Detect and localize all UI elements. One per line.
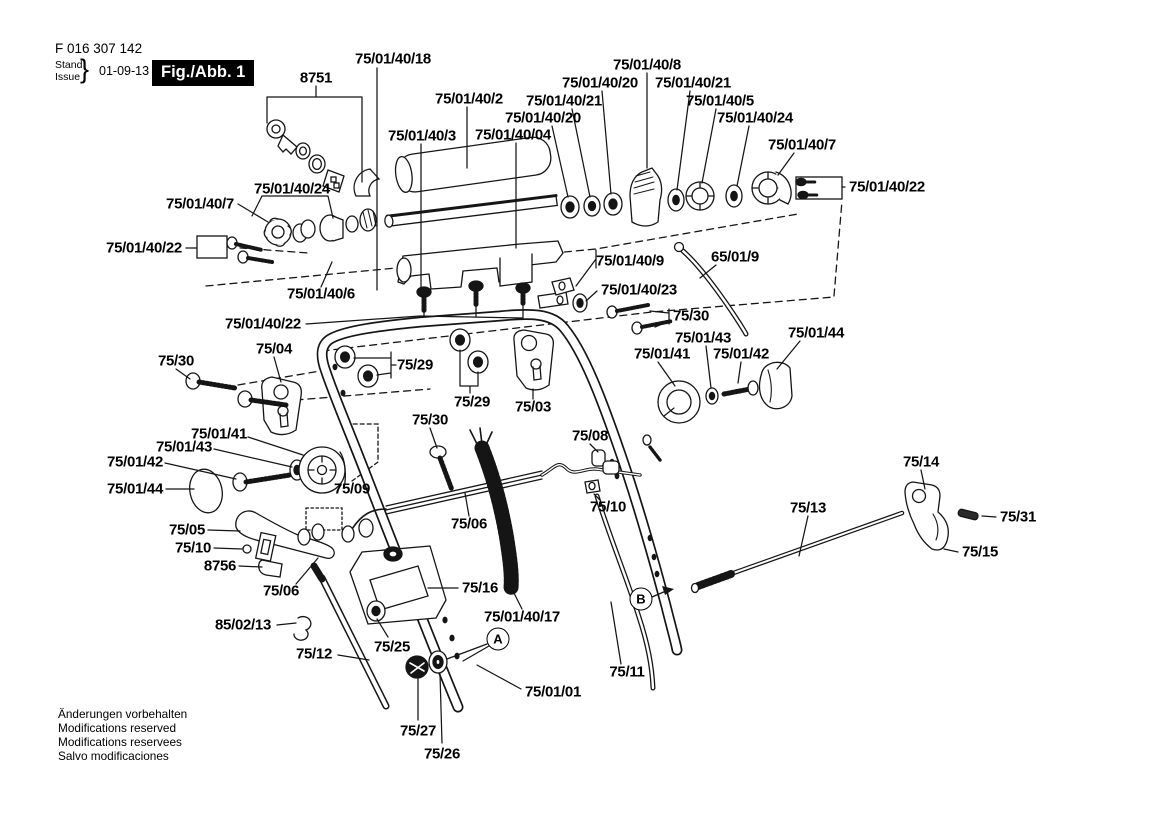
part-label: 75/30 (673, 309, 709, 324)
part-label: 75/01/40/21 (526, 94, 602, 109)
part-label: 75/01/42 (713, 347, 769, 362)
part-label: 75/01/40/7 (768, 138, 836, 153)
part-label: 75/01/40/24 (717, 111, 793, 126)
part-label: 75/01/40/20 (562, 76, 638, 91)
detail-marker-a: A (487, 628, 510, 651)
part-label: 75/08 (572, 429, 608, 444)
part-label: 75/01/40/20 (505, 111, 581, 126)
part-label: 75/01/40/22 (106, 241, 182, 256)
part-label: 75/01/40/2 (435, 92, 503, 107)
part-label: 85/02/13 (215, 618, 271, 633)
part-label: 75/31 (1000, 510, 1036, 525)
part-label: 75/14 (903, 455, 939, 470)
part-label: 75/16 (462, 581, 498, 596)
part-label: 75/01/43 (156, 440, 212, 455)
part-label: 75/01/40/7 (166, 197, 234, 212)
part-label: 75/01/43 (675, 331, 731, 346)
part-label: 75/01/40/17 (484, 610, 560, 625)
part-label: 75/29 (397, 358, 433, 373)
part-label: 75/30 (158, 354, 194, 369)
note-line-es: Salvo modificaciones (58, 749, 187, 763)
part-label: 75/15 (962, 545, 998, 560)
part-label: 75/01/42 (107, 455, 163, 470)
part-label: 75/04 (256, 342, 292, 357)
part-label: 75/05 (169, 523, 205, 538)
part-label: 75/10 (590, 500, 626, 515)
part-label: 75/01/44 (107, 482, 163, 497)
part-label: 75/25 (374, 640, 410, 655)
part-label: 8751 (300, 71, 332, 86)
part-label: 75/01/40/04 (475, 128, 551, 143)
part-label: 75/01/40/18 (355, 52, 431, 67)
part-label: 75/12 (296, 647, 332, 662)
part-label: 75/13 (790, 501, 826, 516)
part-label: 65/01/9 (711, 250, 759, 265)
part-label: 75/06 (451, 517, 487, 532)
part-label: 75/10 (175, 541, 211, 556)
part-label: 75/01/40/5 (686, 94, 754, 109)
note-line-fr: Modifications reservees (58, 735, 187, 749)
note-line-en: Modifications reserved (58, 721, 187, 735)
part-label: 75/11 (609, 665, 644, 680)
part-label: 75/01/40/8 (613, 58, 681, 73)
part-label: 75/01/40/9 (596, 254, 664, 269)
part-label: 75/03 (515, 400, 551, 415)
parts-diagram-page: F 016 307 142 Stand Issue } 01-09-13 Fig… (0, 0, 1168, 825)
modifications-note: Änderungen vorbehalten Modifications res… (58, 707, 187, 763)
part-label: 8756 (204, 559, 236, 574)
part-label: 75/27 (400, 724, 436, 739)
part-label: 75/01/41 (634, 347, 690, 362)
part-label: 75/01/01 (525, 685, 581, 700)
part-label: 75/01/40/22 (849, 180, 925, 195)
part-label: 75/26 (424, 747, 460, 762)
part-label: 75/01/40/3 (388, 129, 456, 144)
note-line-de: Änderungen vorbehalten (58, 707, 187, 721)
part-label: 75/01/40/23 (601, 283, 677, 298)
part-label: 75/01/40/22 (225, 317, 301, 332)
part-label: 75/30 (412, 413, 448, 428)
part-label: 75/09 (334, 482, 370, 497)
part-label: 75/01/40/6 (287, 287, 355, 302)
detail-marker-b: B (630, 588, 653, 611)
part-label: 75/01/44 (788, 326, 844, 341)
part-label: 75/01/40/21 (655, 76, 731, 91)
part-label: 75/29 (454, 395, 490, 410)
part-label: 75/01/40/24 (254, 182, 330, 197)
part-label: 75/06 (263, 584, 299, 599)
diagram-artwork (0, 0, 1168, 825)
